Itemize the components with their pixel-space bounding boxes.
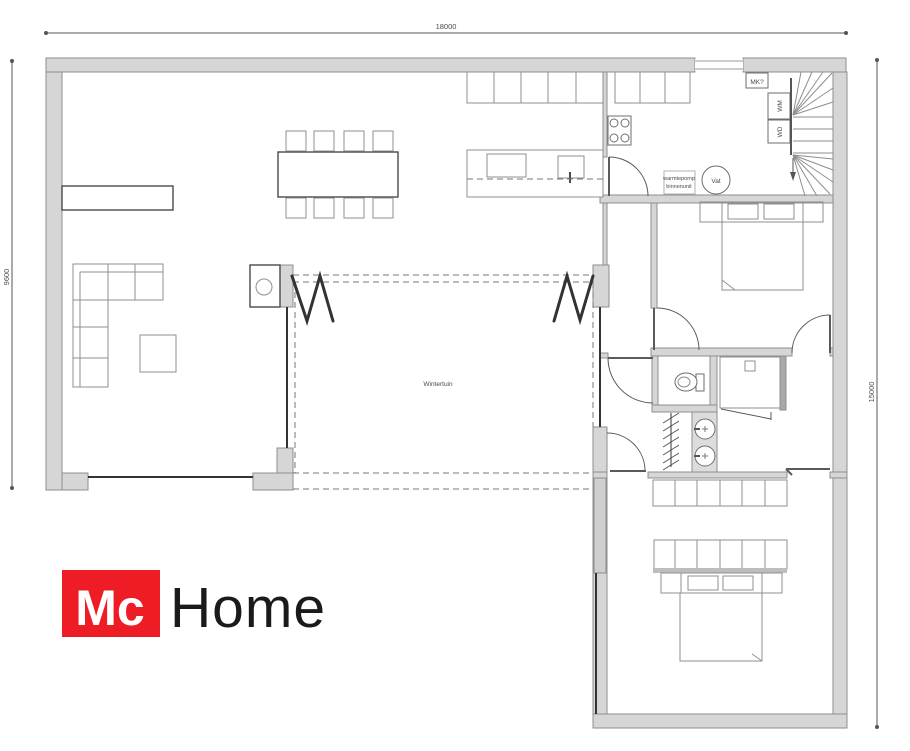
coffee-table [140,335,176,372]
label-mk: MK? [750,79,764,86]
door-bedroom2-hall [654,308,699,350]
kitchen-island [467,150,603,197]
window-wing-left [594,478,606,573]
buffer-tank: Vat [702,166,730,194]
dimension-top: 18000 [44,22,848,35]
bed-head [661,573,782,593]
sideboard [62,186,173,210]
door-bathroom-master [607,433,646,471]
dimension-left-label: 9600 [2,269,11,286]
pillow [728,204,758,219]
pillow [688,576,718,590]
dimension-right: 15000 [867,58,879,729]
bedroom-2 [700,202,823,290]
shower [720,357,780,420]
staircase [790,72,833,196]
pillow [764,204,794,219]
sliding-door-master [786,469,830,475]
floor-plan-page: 18000 9600 15000 [0,0,910,751]
upper-cabinets [467,72,690,103]
bathroom [663,357,780,472]
dining-table [278,152,398,197]
folding-panel-icon-left [292,276,333,321]
door-hall-bathroom [608,358,653,403]
exterior-walls [46,58,847,728]
living-area [62,186,280,387]
label-heatpump-2: binnenunit [666,184,692,190]
window-top-wall [695,59,743,71]
label-wd: WD [777,126,784,137]
heat-pump-unit: warmtepomp binnenunit [662,171,695,194]
dimension-left: 9600 [2,59,14,490]
shower-drain [745,361,755,371]
label-wm: WM [777,100,784,112]
door-bedroom2-bathroom [792,315,830,353]
room-label-wintertuin: Wintertuin [423,381,453,388]
label-heatpump-1: warmtepomp [662,176,695,182]
wood-stove [250,265,280,307]
kitchen [467,72,690,197]
folding-panel-icon-right [554,276,593,321]
headboard [700,202,823,222]
vanity [692,412,717,472]
label-vat: Vat [711,178,720,185]
master-bedroom [653,480,787,661]
toilet [675,373,704,391]
interior-walls [253,72,847,490]
wintertuin: Wintertuin [292,275,593,489]
dining-area [278,131,398,218]
bed [680,593,762,661]
closet-row-middle [653,540,787,573]
logo-mc-text: Mc [75,580,144,636]
closet-row-top [653,480,787,506]
meter-cupboard: MK? [746,73,768,88]
hob [608,116,631,145]
logo-home-text: Home [170,576,326,640]
dimension-top-label: 18000 [436,22,457,31]
floor-plan-drawing: 18000 9600 15000 [0,0,910,751]
wintertuin-column-right [593,265,609,307]
radiator [663,413,679,470]
washing-machine: WM [768,93,790,119]
doors [607,157,830,475]
mchome-logo: Mc Home [62,570,326,640]
dryer: WD [768,120,790,143]
door-utility [609,157,648,196]
pillow [723,576,753,590]
dimension-right-label: 15000 [867,382,876,403]
